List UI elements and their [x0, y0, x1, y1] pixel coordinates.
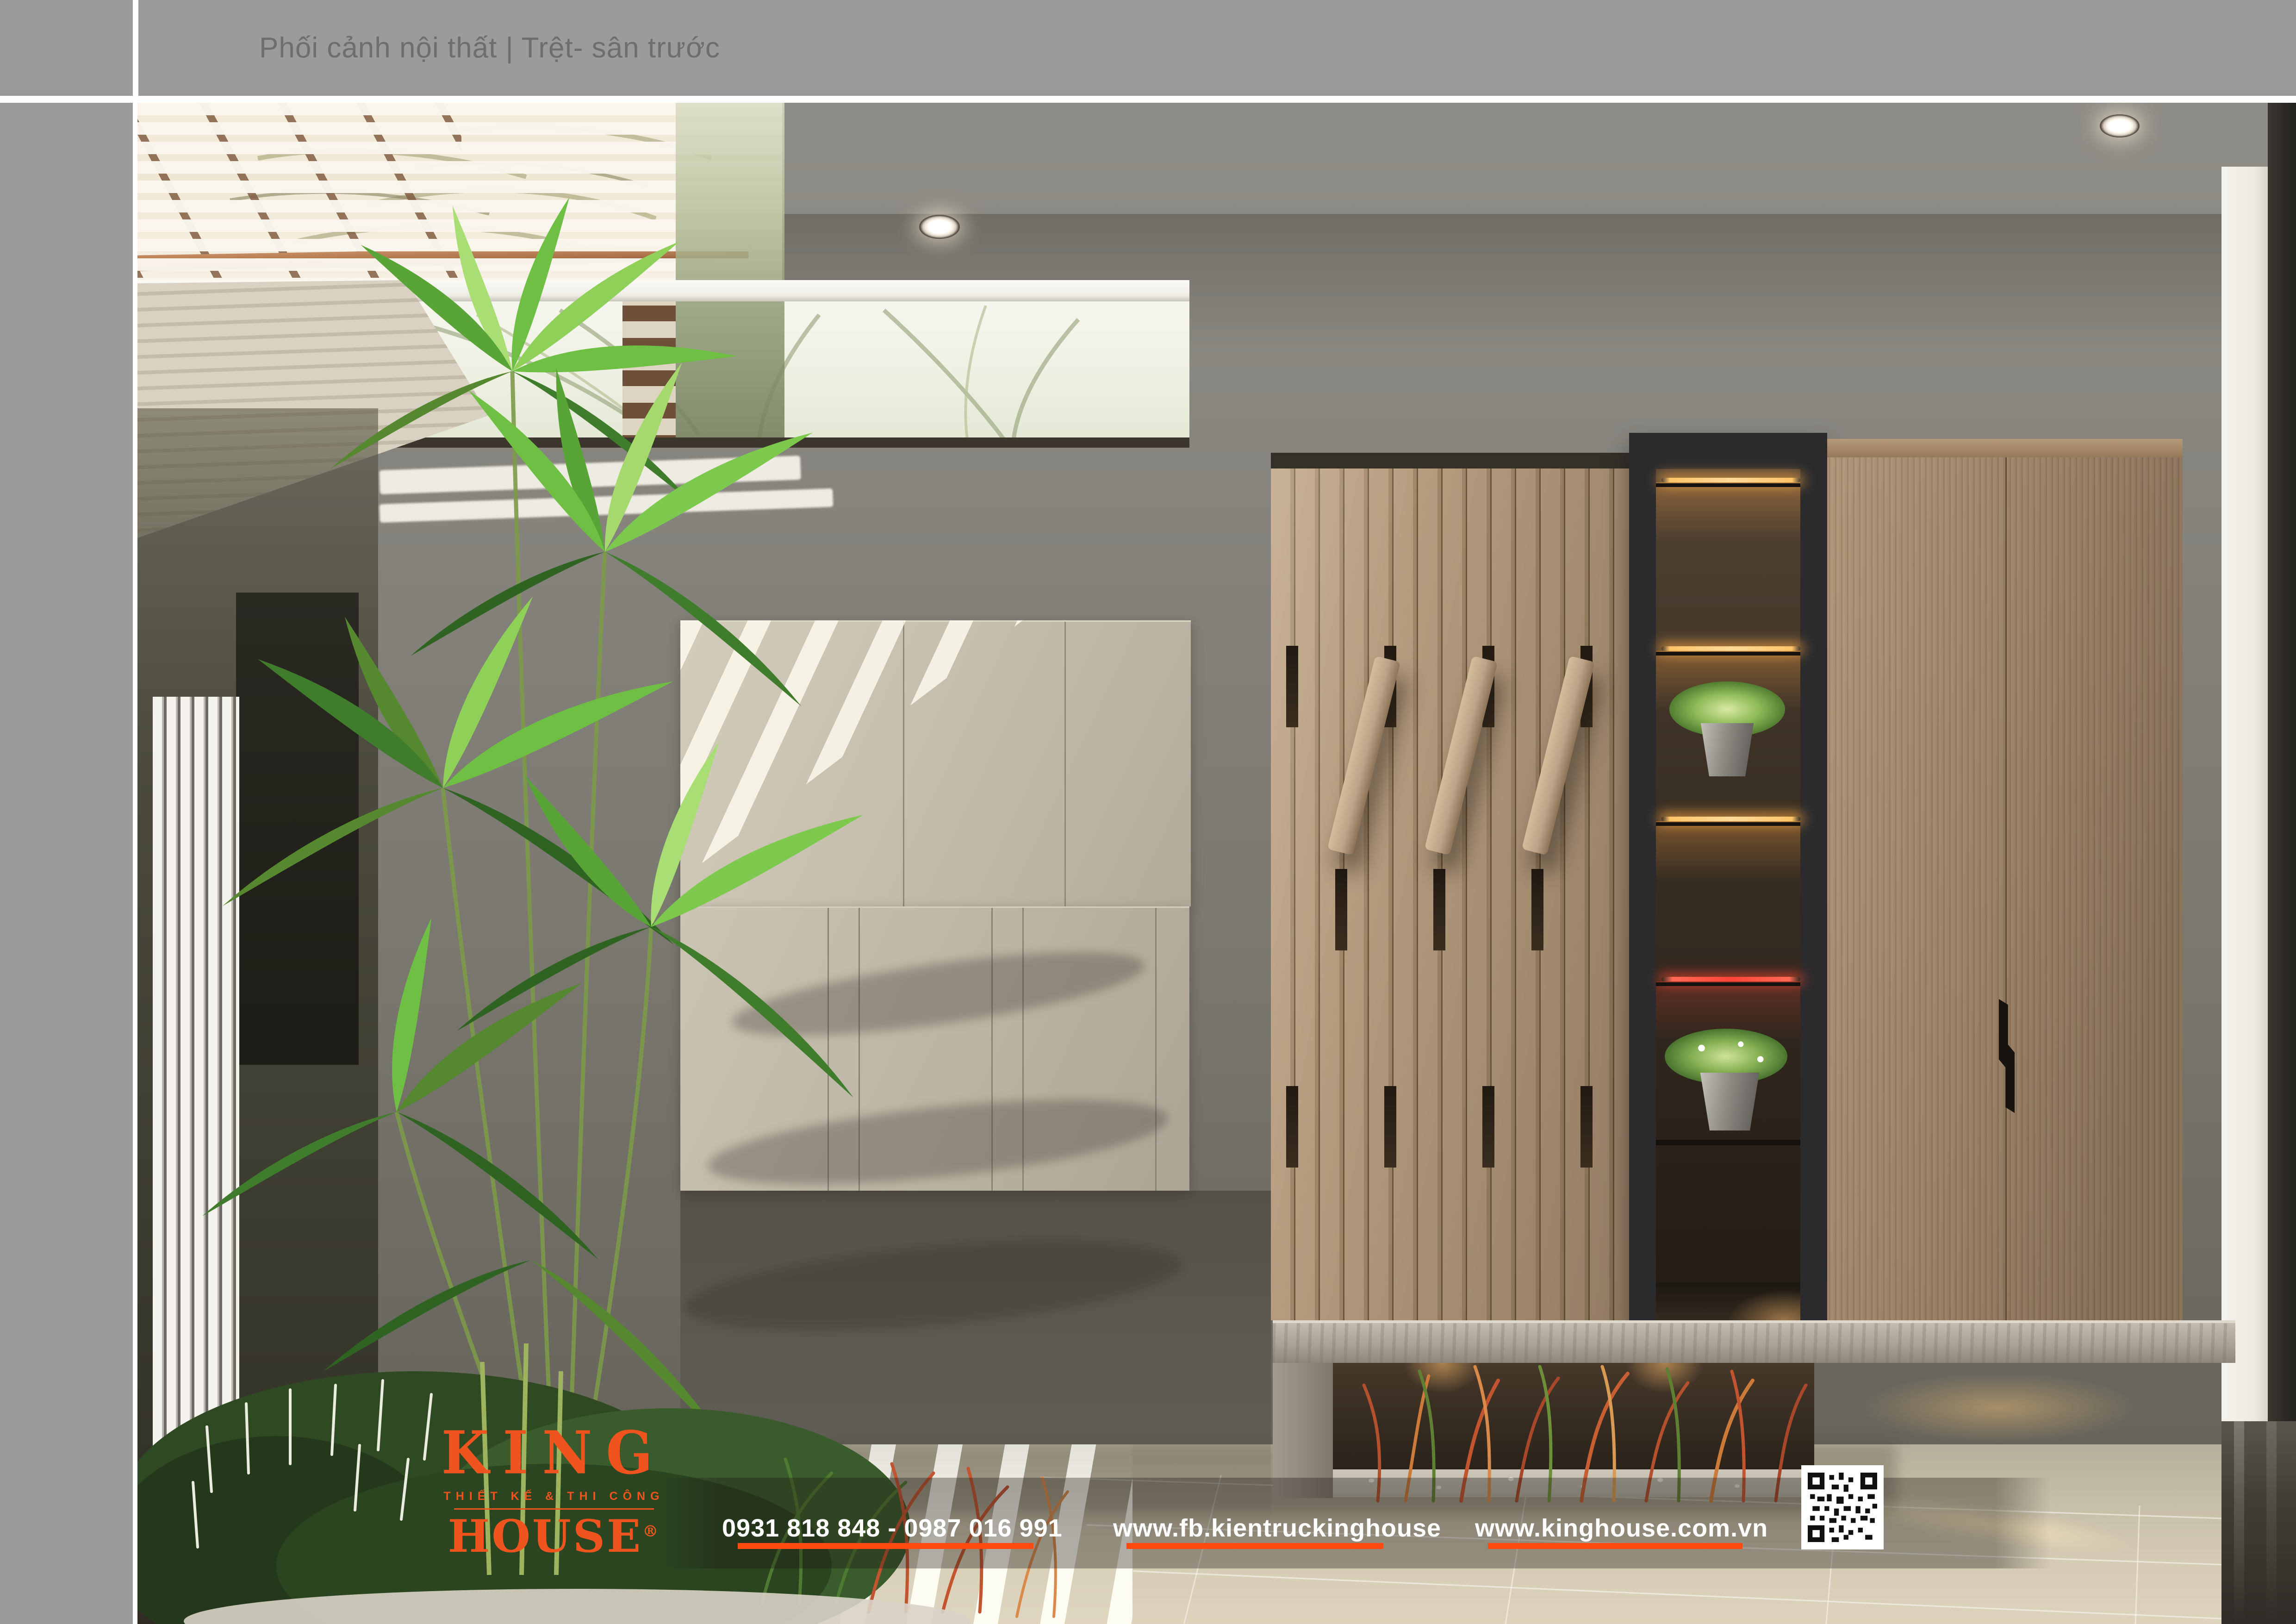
facebook-underline — [1126, 1543, 1383, 1549]
website-url: www.kinghouse.com.vn — [1475, 1514, 1768, 1543]
cabinet-seam — [1155, 908, 1157, 1191]
panel-slot — [1580, 1086, 1593, 1168]
phone-underline — [738, 1543, 1033, 1549]
shelf-board — [1656, 982, 1800, 986]
wardrobe-top-rail — [1827, 439, 2183, 457]
shelf-bottom-glow — [1720, 1282, 1800, 1320]
left-margin-column — [0, 103, 133, 1624]
frame-gap — [0, 96, 2296, 103]
panel-slot — [1286, 646, 1298, 727]
panel-slot — [1384, 1086, 1396, 1168]
slat-panel-trim — [1271, 453, 1629, 468]
crown-mid — [411, 361, 827, 706]
led-strip-amber — [1661, 478, 1800, 482]
page-title: Phối cảnh nội thất | Trệt- sân trước — [259, 0, 720, 96]
logo-brand-house: HOUSE® — [434, 1510, 674, 1562]
led-strip-amber — [1661, 646, 1800, 651]
led-strip-amber — [1661, 817, 1800, 821]
panel-slot — [1286, 1086, 1298, 1168]
shelf-board — [1656, 822, 1800, 826]
crown-right — [457, 740, 879, 1098]
led-strip-red — [1661, 977, 1800, 981]
interior-render: KING THIẾT KẾ & THI CÔNG HOUSE® 0931 818… — [137, 103, 2296, 1624]
header-bar: Phối cảnh nội thất | Trệt- sân trước — [0, 0, 2296, 96]
dark-edge-panel — [2268, 103, 2296, 1421]
shelf-board — [1656, 652, 1800, 656]
presentation-board: Phối cảnh nội thất | Trệt- sân trước — [0, 0, 2296, 1624]
panel-slot — [1433, 869, 1445, 950]
cabinet-seam — [1064, 622, 1066, 906]
qr-code — [1808, 1473, 1877, 1542]
wood-slat-panel — [1271, 468, 1629, 1320]
registered-mark: ® — [642, 1522, 660, 1541]
concrete-bench — [1273, 1320, 2235, 1363]
panel-slot — [1482, 1086, 1494, 1168]
panel-slot — [1335, 869, 1347, 950]
shelf-board — [1656, 483, 1800, 487]
led-glow — [1656, 482, 1800, 543]
qr-code-card — [1801, 1465, 1884, 1549]
website-underline — [1488, 1543, 1742, 1549]
logo-tagline: THIẾT KẾ & THI CÔNG — [434, 1490, 674, 1503]
logo-brand-king: KING — [434, 1418, 674, 1487]
recessed-downlight — [2100, 114, 2140, 137]
logo-brand-house-text: HOUSE — [448, 1510, 643, 1562]
under-bench-warm-glow — [1841, 1376, 2192, 1482]
wardrobe-door-seam — [2005, 457, 2007, 1320]
wood-wardrobe — [1827, 457, 2183, 1320]
facebook-url: www.fb.kientruckinghouse — [1113, 1514, 1441, 1543]
shelf-board — [1656, 1140, 1800, 1145]
white-pillar — [2221, 167, 2268, 1422]
panel-slot — [1531, 869, 1543, 950]
phone-numbers: 0931 818 848 - 0987 016 991 — [722, 1514, 1063, 1543]
logo-rule — [454, 1508, 654, 1510]
led-glow — [1656, 821, 1800, 881]
